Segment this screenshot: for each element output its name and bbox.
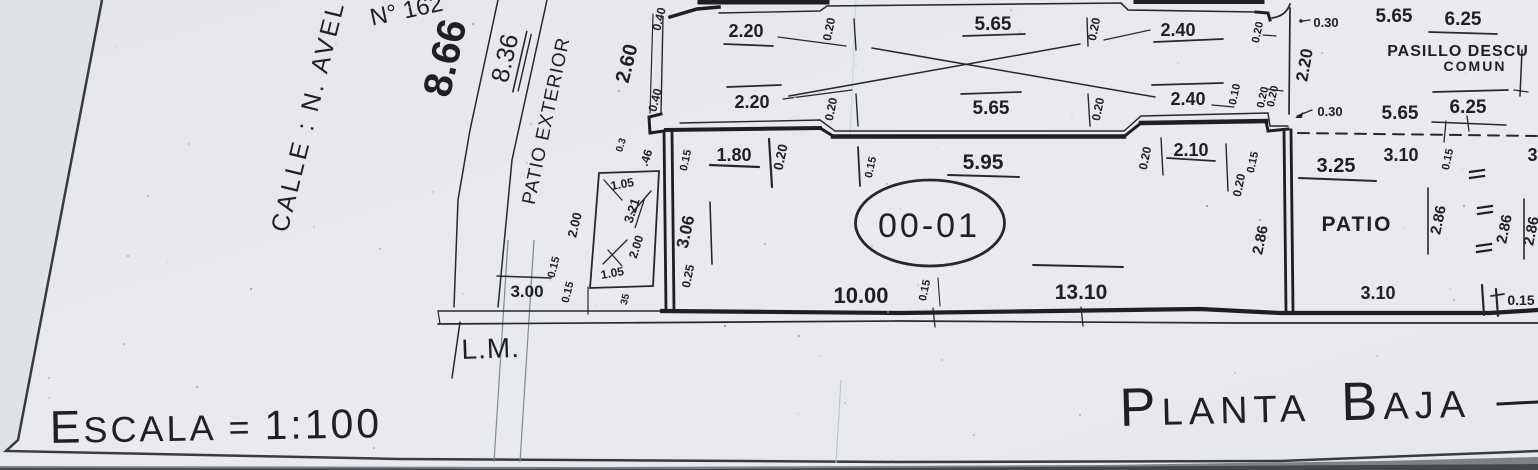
svg-text:5.65: 5.65 (975, 14, 1012, 35)
svg-text:2.40: 2.40 (1170, 89, 1205, 109)
svg-text:5.65: 5.65 (1376, 6, 1413, 27)
svg-text:10.00: 10.00 (833, 283, 888, 308)
svg-text:1.80: 1.80 (716, 145, 751, 165)
svg-text:0.30: 0.30 (1317, 104, 1342, 119)
svg-text:5.65: 5.65 (1382, 103, 1419, 124)
svg-text:L.M.: L.M. (461, 332, 521, 365)
svg-text:3.1: 3.1 (1527, 145, 1538, 165)
svg-text:5.65: 5.65 (973, 98, 1010, 119)
svg-text:0.30: 0.30 (1313, 15, 1338, 30)
svg-text:3.10: 3.10 (1383, 145, 1418, 165)
svg-text:2.20: 2.20 (734, 92, 769, 112)
svg-text:3.00: 3.00 (510, 282, 543, 301)
svg-text:5.95: 5.95 (963, 151, 1004, 174)
svg-text:COMUN: COMUN (1444, 58, 1507, 74)
svg-text:PATIO: PATIO (1321, 213, 1392, 236)
svg-text:6.25: 6.25 (1450, 97, 1487, 118)
svg-text:3.10: 3.10 (1360, 283, 1395, 303)
svg-text:3.25: 3.25 (1317, 155, 1356, 177)
svg-text:6.25: 6.25 (1445, 9, 1482, 30)
svg-text:0.15: 0.15 (1507, 292, 1534, 308)
svg-text:2.10: 2.10 (1173, 140, 1208, 160)
svg-text:00-01: 00-01 (878, 207, 980, 245)
svg-text:2.20: 2.20 (728, 21, 763, 41)
svg-text:13.10: 13.10 (1055, 281, 1108, 304)
svg-text:2.40: 2.40 (1160, 20, 1195, 40)
